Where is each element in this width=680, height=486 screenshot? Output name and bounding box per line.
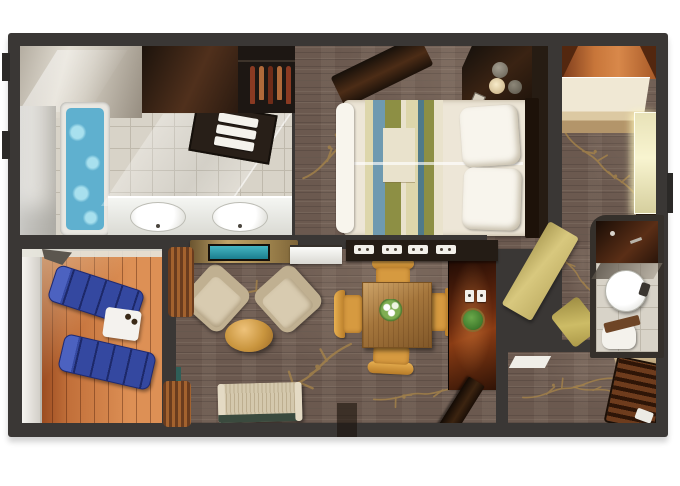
tub-water: [66, 108, 104, 230]
floor-plan: [8, 33, 668, 437]
bed-quilt-panel: [383, 128, 415, 182]
foot-bench: [336, 103, 354, 233]
tv-screen: [208, 244, 270, 261]
sink-right: [212, 202, 268, 232]
stool: [508, 80, 522, 94]
sofa-back: [218, 413, 302, 423]
shower-fixture: [610, 231, 615, 236]
towel: [603, 315, 640, 333]
tv-cabinet: [190, 240, 298, 263]
faucet: [156, 224, 160, 228]
room-second-bathroom: [590, 215, 664, 358]
wall-shadow-stub: [337, 403, 357, 437]
bathtub: [60, 102, 110, 236]
pillow: [459, 104, 521, 168]
round-coffee-table: [225, 319, 273, 352]
light-switch: [465, 290, 474, 302]
bar-counter: [290, 245, 342, 264]
wall-notch: [667, 173, 673, 213]
curtain: [168, 247, 194, 317]
wall-notch: [2, 131, 10, 159]
floor-plan-image: [0, 0, 680, 486]
double-sink-vanity: [108, 196, 292, 237]
headboard: [525, 98, 539, 238]
tray: [382, 245, 402, 254]
curtain: [163, 381, 191, 427]
tray: [354, 245, 374, 254]
second-bathroom-floor: [596, 221, 658, 352]
sink-left: [130, 202, 186, 232]
room-balcony: [22, 249, 162, 423]
bench-pillow: [634, 408, 654, 423]
dining-table: [362, 282, 432, 348]
wall-bedroom-right: [548, 43, 562, 249]
sideboard: [346, 240, 498, 261]
shower-rail: [630, 237, 642, 244]
cup: [131, 318, 138, 325]
room-entry-hall: [508, 352, 656, 423]
dining-chair: [334, 290, 364, 338]
wall-notch: [2, 53, 10, 81]
angled-headwall: [331, 46, 434, 108]
room-master-bedroom: [295, 46, 548, 249]
toilet: [602, 321, 636, 349]
room-living-dining: [176, 249, 496, 423]
water-closet: [142, 46, 238, 113]
potted-plant: [463, 310, 483, 330]
flower-centerpiece: [379, 299, 405, 323]
stool: [492, 62, 508, 78]
bathroom-wall-panels: [20, 106, 56, 237]
faucet: [238, 224, 242, 228]
table-lamp: [489, 78, 505, 94]
sofa: [218, 382, 303, 423]
tray: [408, 245, 428, 254]
cherry-cabinet: [448, 257, 496, 390]
slatted-bench: [603, 355, 656, 423]
door-mat: [509, 356, 551, 368]
mirror-panel: [634, 112, 656, 214]
ceiling-strip: [562, 46, 656, 79]
light-switch: [477, 290, 486, 302]
cup: [125, 313, 132, 320]
shower: [596, 221, 658, 263]
tray: [436, 245, 456, 254]
balcony-side-table: [102, 307, 142, 342]
bed: [343, 100, 531, 236]
balcony-railing: [22, 249, 42, 423]
wall-dining-hall: [496, 249, 508, 423]
pillow: [462, 167, 522, 231]
